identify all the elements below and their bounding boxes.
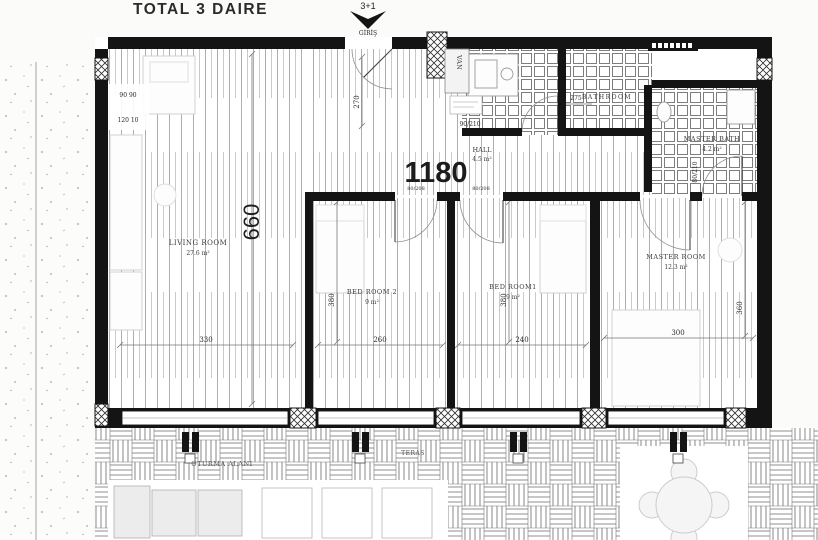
- entrance-label: GİRİŞ: [359, 30, 377, 37]
- partition-bath-masterbath: [644, 85, 652, 192]
- round-table: [656, 477, 712, 533]
- partition-kitchen-bath: [558, 49, 566, 136]
- partition: [503, 192, 640, 201]
- master-bed: [612, 310, 700, 406]
- coffee-table: [154, 184, 176, 206]
- master-room-label: MASTER ROOM: [646, 253, 706, 261]
- floor-plan-page: OTURMA ALANI TERAS: [0, 0, 818, 540]
- terrace-area: OTURMA ALANI TERAS: [95, 428, 818, 540]
- shaft-label: VAN: [455, 54, 463, 70]
- total-depth-dim: 660: [239, 204, 264, 241]
- partition-living-bed2: [305, 192, 313, 428]
- wall-dim-a: 90 90: [119, 92, 136, 99]
- master-bath-top-wall: [652, 80, 757, 88]
- partition-bed2-bed1: [447, 192, 455, 428]
- living-room-label: LIVING ROOM: [169, 239, 228, 247]
- right-wall: [757, 49, 772, 428]
- seating-area-label: OTURMA ALANI: [191, 460, 252, 468]
- unit-type-label: 3+1: [360, 1, 375, 11]
- living-width-dim: 330: [199, 336, 212, 344]
- window: [462, 411, 580, 425]
- terrace-sofa-set: [114, 486, 242, 538]
- window: [122, 411, 288, 425]
- hall-label: HALL: [473, 146, 493, 154]
- partition-bed1-master: [590, 192, 600, 428]
- master-chair: [718, 238, 742, 262]
- terrace-tables: [262, 488, 432, 538]
- living-sofa: [110, 135, 142, 270]
- partition: [690, 192, 702, 201]
- bed2-depth-dim: 380: [328, 293, 336, 306]
- bed2-label: BED ROOM 2: [347, 288, 397, 296]
- entrance-arrow-icon: [350, 11, 386, 29]
- bathroom-width-dim: 275: [570, 95, 582, 102]
- kitchen-sink: [475, 60, 497, 88]
- hall-area: 4.5 m²: [472, 156, 492, 163]
- top-wall-right: [392, 37, 772, 49]
- hall-depth-dim: 270: [353, 95, 361, 108]
- bed2-door-dim: 80/208: [407, 186, 425, 192]
- bed2-area: 9 m²: [365, 299, 379, 306]
- plan-title: TOTAL 3 DAIRE: [133, 1, 268, 18]
- living-sofa-2: [110, 272, 142, 330]
- bed1-label: BED ROOM1: [489, 283, 537, 291]
- column: [436, 408, 460, 428]
- bed1-door-dim: 80/208: [472, 186, 490, 192]
- bed1-width-dim: 240: [515, 336, 528, 344]
- wall-dims: 90 90 120 10: [109, 84, 149, 130]
- column: [95, 58, 108, 80]
- bathroom-label: BATHROOM: [582, 94, 632, 101]
- bed1-pillow: [540, 205, 586, 221]
- bathroom-wall-2: [566, 128, 652, 136]
- windows: [122, 411, 724, 425]
- tv-shelf: [150, 62, 188, 82]
- left-wall: [95, 49, 108, 428]
- master-bath-area: 4.2 m²: [702, 146, 722, 153]
- living-room-area: 27.6 m²: [186, 250, 210, 257]
- column: [290, 408, 316, 428]
- column: [726, 408, 746, 428]
- equipment-box: [450, 96, 482, 114]
- column: [757, 58, 772, 80]
- master-bath-door-dim: 80/210: [692, 161, 699, 182]
- master-room-area: 12.3 m²: [664, 264, 688, 271]
- column: [427, 32, 447, 78]
- master-depth-dim: 360: [736, 301, 744, 314]
- bed2-pillow: [316, 205, 364, 221]
- column: [582, 408, 606, 428]
- bed1-area: 9 m²: [506, 294, 520, 301]
- bed1-depth-dim: 380: [500, 293, 508, 306]
- partition: [305, 192, 395, 201]
- garden-texture: [0, 62, 92, 540]
- column: [95, 404, 108, 426]
- garden-area: [0, 62, 92, 540]
- master-width-dim: 300: [671, 329, 684, 337]
- shower: [727, 90, 755, 124]
- bathroom-wall: [462, 128, 522, 136]
- bed2-width-dim: 260: [373, 336, 386, 344]
- window: [608, 411, 724, 425]
- partition: [742, 192, 757, 201]
- master-bath-label: MASTER BATH: [684, 135, 740, 143]
- floor-plan-canvas: OTURMA ALANI TERAS: [0, 0, 818, 540]
- entrance-marker: 3+1 GİRİŞ: [350, 1, 386, 37]
- top-wall-left: [108, 37, 345, 49]
- total-width-dim: 1180: [405, 157, 468, 189]
- window: [318, 411, 434, 425]
- terrace-label: TERAS: [401, 450, 425, 457]
- toilet: [657, 102, 671, 122]
- bathroom-door-dim: 90/210: [459, 121, 480, 128]
- bathroom-tiles: [566, 49, 652, 135]
- wall-dim-b: 120 10: [118, 117, 139, 124]
